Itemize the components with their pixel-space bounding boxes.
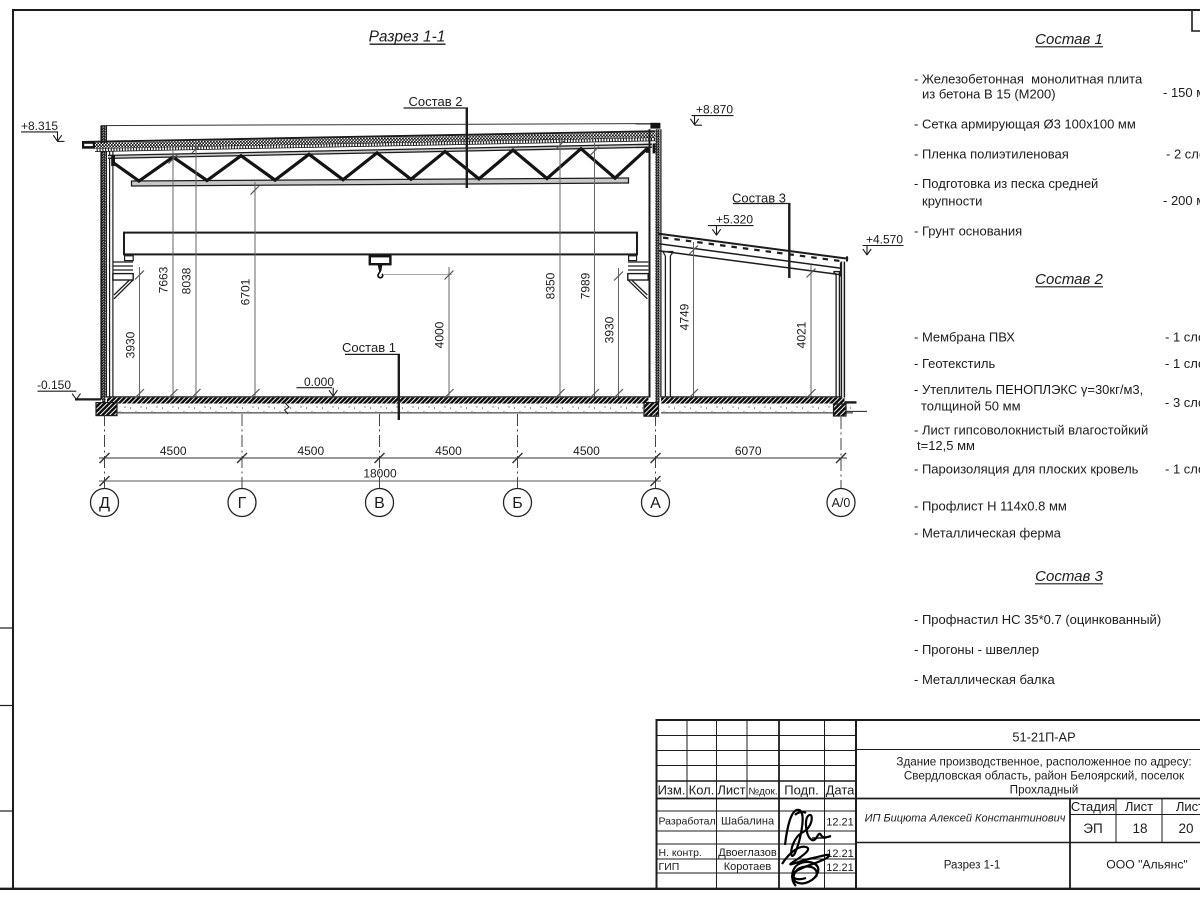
svg-text:- Сетка армирующая Ø3 100х100: - Сетка армирующая Ø3 100х100 мм bbox=[914, 116, 1136, 131]
svg-text:Состав 1: Состав 1 bbox=[342, 340, 396, 355]
svg-text:- Пароизоляция для плоских кро: - Пароизоляция для плоских кровель bbox=[914, 462, 1139, 477]
svg-text:+5.320: +5.320 bbox=[716, 213, 753, 227]
svg-text:12.21: 12.21 bbox=[826, 862, 854, 874]
svg-text:Состав 1: Состав 1 bbox=[1035, 31, 1103, 48]
svg-text:Свердловская область, район Бе: Свердловская область, район Белоярский, … bbox=[904, 770, 1185, 783]
svg-text:6070: 6070 bbox=[735, 444, 762, 458]
svg-text:крупности: крупности bbox=[922, 194, 982, 209]
svg-text:Коротаев: Коротаев bbox=[724, 861, 772, 873]
svg-text:Дата: Дата bbox=[826, 783, 856, 798]
svg-text:18: 18 bbox=[1132, 821, 1147, 836]
svg-text:8038: 8038 bbox=[180, 267, 194, 294]
svg-text:ЭП: ЭП bbox=[1083, 821, 1102, 836]
svg-text:№док.: №док. bbox=[748, 787, 777, 798]
svg-text:4749: 4749 bbox=[678, 303, 692, 330]
svg-text:ГИП: ГИП bbox=[659, 861, 680, 873]
svg-text:Лист: Лист bbox=[1125, 799, 1153, 814]
svg-text:из бетона В 15 (М200): из бетона В 15 (М200) bbox=[922, 86, 1056, 101]
svg-text:Изм.: Изм. bbox=[658, 783, 686, 798]
svg-text:Н. контр.: Н. контр. bbox=[659, 847, 702, 859]
svg-text:51-21П-АР: 51-21П-АР bbox=[1012, 730, 1075, 745]
svg-text:- Металлическая ферма: - Металлическая ферма bbox=[914, 525, 1062, 540]
svg-text:В: В bbox=[374, 495, 385, 512]
svg-text:4021: 4021 bbox=[795, 321, 809, 348]
svg-text:4500: 4500 bbox=[435, 444, 462, 458]
svg-text:- 2 слоя: - 2 слоя bbox=[1166, 146, 1200, 161]
svg-text:- Прогоны - швеллер: - Прогоны - швеллер bbox=[914, 642, 1039, 657]
svg-text:- 3 слоя: - 3 слоя bbox=[1165, 395, 1200, 410]
svg-text:8350: 8350 bbox=[544, 272, 558, 299]
svg-text:ООО "Альянс": ООО "Альянс" bbox=[1106, 858, 1188, 872]
svg-text:- 1 слой: - 1 слой bbox=[1165, 329, 1200, 344]
svg-text:- Лист гипсоволокнистый влагос: - Лист гипсоволокнистый влагостойкий bbox=[914, 423, 1148, 438]
svg-text:12.21: 12.21 bbox=[826, 848, 854, 860]
svg-text:- 200 мм: - 200 мм bbox=[1163, 193, 1200, 208]
svg-text:Шабалина: Шабалина bbox=[721, 816, 775, 828]
svg-text:Состав 2: Состав 2 bbox=[409, 94, 463, 109]
svg-text:- Профлист Н 114х0.8 мм: - Профлист Н 114х0.8 мм bbox=[914, 499, 1067, 514]
svg-text:-0.150: -0.150 bbox=[37, 378, 71, 392]
svg-text:Б: Б bbox=[512, 495, 523, 512]
svg-text:- Грунт основания: - Грунт основания bbox=[914, 224, 1022, 239]
svg-text:20: 20 bbox=[1178, 821, 1193, 836]
svg-text:Прохладный: Прохладный bbox=[1010, 784, 1079, 797]
svg-text:t=12,5 мм: t=12,5 мм bbox=[917, 438, 975, 453]
svg-text:Кол.: Кол. bbox=[689, 783, 715, 798]
svg-text:Двоеглазов: Двоеглазов bbox=[718, 847, 777, 859]
svg-text:4000: 4000 bbox=[433, 321, 447, 348]
svg-text:Разрез 1-1: Разрез 1-1 bbox=[369, 29, 446, 46]
svg-text:- Подготовка из песка средней: - Подготовка из песка средней bbox=[914, 176, 1098, 191]
svg-text:- 150 мм: - 150 мм bbox=[1163, 85, 1200, 100]
svg-text:7989: 7989 bbox=[579, 272, 593, 299]
svg-text:Разрез 1-1: Разрез 1-1 bbox=[944, 860, 1000, 872]
svg-text:+8.870: +8.870 bbox=[696, 103, 733, 117]
svg-text:Подп.: Подп. bbox=[784, 783, 819, 798]
svg-text:ИП Бицюта Алексей Константинов: ИП Бицюта Алексей Константинович bbox=[865, 813, 1066, 825]
svg-text:6701: 6701 bbox=[239, 278, 253, 305]
svg-text:+4.570: +4.570 bbox=[866, 232, 903, 246]
svg-text:Разработал: Разработал bbox=[659, 816, 716, 828]
svg-text:18000: 18000 bbox=[363, 467, 397, 481]
svg-text:3930: 3930 bbox=[124, 331, 138, 358]
svg-text:- Пленка полиэтиленовая: - Пленка полиэтиленовая bbox=[914, 146, 1069, 161]
svg-text:А: А bbox=[650, 495, 661, 512]
svg-text:Состав 3: Состав 3 bbox=[1035, 568, 1103, 585]
svg-text:толщиной 50 мм: толщиной 50 мм bbox=[921, 399, 1021, 414]
svg-text:Состав 2: Состав 2 bbox=[1035, 271, 1103, 288]
svg-text:4500: 4500 bbox=[297, 444, 324, 458]
svg-text:- Железобетонная монолитная п: - Железобетонная монолитная плита bbox=[914, 71, 1143, 86]
svg-text:Стадия: Стадия bbox=[1071, 799, 1115, 814]
svg-text:3930: 3930 bbox=[603, 316, 617, 343]
svg-text:Г: Г bbox=[238, 495, 247, 512]
svg-text:Здание производственное, распо: Здание производственное, расположенное п… bbox=[896, 756, 1191, 769]
svg-text:- Профнастил НС 35*0.7 (оцинко: - Профнастил НС 35*0.7 (оцинкованный) bbox=[914, 612, 1161, 627]
svg-text:- 1 слой: - 1 слой bbox=[1165, 356, 1200, 371]
svg-text:- Геотекстиль: - Геотекстиль bbox=[914, 356, 995, 371]
svg-text:Листов: Листов bbox=[1176, 799, 1200, 814]
svg-text:- Утеплитель ПЕНОПЛЭКС γ=30кг/: - Утеплитель ПЕНОПЛЭКС γ=30кг/м3, bbox=[914, 382, 1143, 397]
svg-text:Лист: Лист bbox=[717, 783, 745, 798]
svg-text:А/0: А/0 bbox=[832, 496, 851, 510]
svg-text:Д: Д bbox=[99, 495, 110, 512]
svg-text:4500: 4500 bbox=[573, 444, 600, 458]
svg-text:- 1 слой: - 1 слой bbox=[1165, 462, 1200, 477]
svg-text:- Мембрана ПВХ: - Мембрана ПВХ bbox=[914, 329, 1015, 344]
svg-text:4500: 4500 bbox=[160, 444, 187, 458]
svg-text:7663: 7663 bbox=[157, 266, 171, 293]
svg-text:- Металлическая балка: - Металлическая балка bbox=[914, 672, 1055, 687]
svg-text:+8.315: +8.315 bbox=[21, 119, 58, 133]
svg-text:12.21: 12.21 bbox=[826, 817, 854, 829]
svg-text:0.000: 0.000 bbox=[304, 375, 334, 389]
